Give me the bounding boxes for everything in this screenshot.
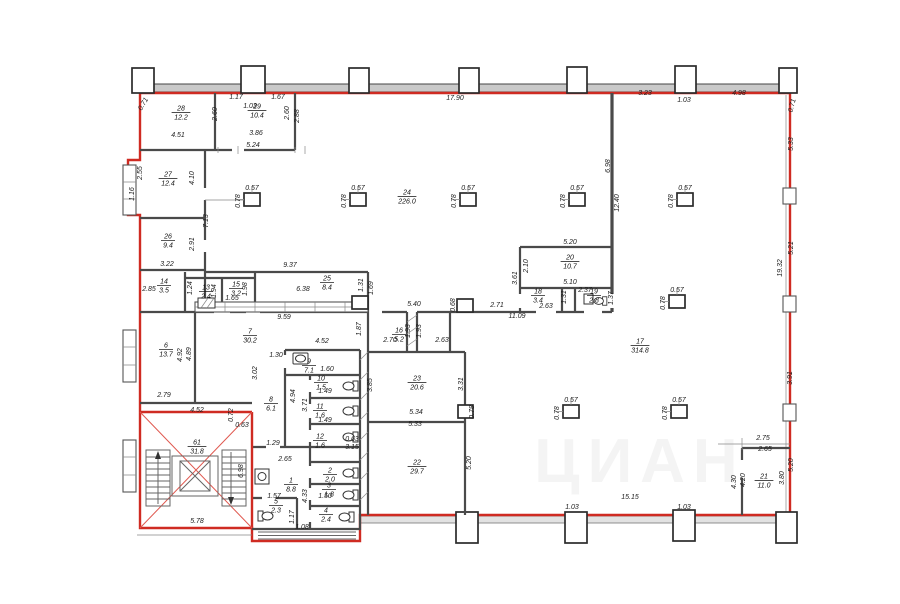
room-number: 20 [565, 255, 574, 262]
room-label-16: 165.2 [392, 328, 406, 344]
room-number: 8 [269, 397, 273, 404]
dim-label: 1.29 [266, 440, 280, 447]
dim-label: 17.90 [446, 95, 464, 102]
dim-label: 4.52 [315, 338, 329, 345]
dim-label: 1.67 [271, 94, 286, 101]
room-area: 2.8 [588, 298, 599, 305]
dim-label: 4.89 [186, 347, 193, 361]
dim-label: 0.78 [668, 194, 675, 208]
dim-label: 4.94 [290, 389, 297, 403]
floor-plan-canvas: ЦИАН [0, 0, 900, 604]
dim-label: 1.17 [229, 94, 244, 101]
dim-label: 1.93 [405, 324, 412, 338]
dim-label: 4.98 [732, 90, 746, 97]
room-number: 17 [636, 339, 645, 346]
dim-label: 2.88 [294, 109, 301, 124]
room-area: 2.3 [270, 508, 281, 515]
room-label-8: 86.1 [264, 397, 278, 413]
room-number: 26 [163, 234, 172, 241]
room-area: 12.2 [174, 115, 188, 122]
room-label-26: 269.4 [161, 234, 175, 250]
room-area: 2.4 [200, 294, 211, 301]
dim-label: 5.34 [409, 409, 423, 416]
room-number: 23 [412, 376, 421, 383]
room-number: 61 [193, 440, 201, 447]
room-area: 2.4 [320, 517, 331, 524]
room-label-17: 17314.8 [631, 339, 650, 355]
room-number: 10 [317, 376, 325, 383]
dim-label: 0.68 [450, 298, 457, 312]
room-area: 1.6 [315, 443, 325, 450]
dim-label: 2.65 [757, 446, 772, 453]
dim-label: 0.57 [351, 185, 366, 192]
room-area: 5.2 [394, 337, 404, 344]
dim-label: 5.24 [246, 142, 260, 149]
dim-label: 4.51 [171, 132, 185, 139]
room-label-28: 2812.2 [172, 106, 191, 122]
dim-label: 0.57 [678, 185, 693, 192]
dim-label: 3.02 [252, 366, 259, 380]
dim-label: 5.20 [563, 239, 577, 246]
stair-up-arrow [155, 451, 161, 504]
room-area: 13.7 [159, 352, 174, 359]
room-number: 7 [248, 329, 253, 336]
dim-label: 1.60 [320, 366, 334, 373]
dim-label: 3.22 [160, 261, 174, 268]
room-area: 8.4 [322, 285, 332, 292]
room-number: 28 [176, 106, 185, 113]
dim-label: 2.85 [141, 286, 156, 293]
dim-label: 3.31 [458, 377, 465, 391]
dim-label: 2.60 [284, 106, 291, 121]
room-number: 18 [534, 289, 542, 296]
sink-icon [293, 353, 308, 364]
dim-label: 1.93 [416, 324, 423, 338]
dim-label: 0.57 [461, 185, 476, 192]
room-number: 13 [202, 285, 210, 292]
room-label-27: 2712.4 [159, 172, 178, 188]
room-area: 31.8 [190, 449, 204, 456]
dim-label: 1.24 [187, 281, 194, 295]
room-area: 1.6 [315, 413, 325, 420]
room-area: 10.4 [250, 113, 264, 120]
dim-label: 1.98 [242, 282, 249, 296]
room-number: 14 [160, 279, 168, 286]
dim-label: 1.87 [356, 321, 363, 336]
dim-label: 1.03 [565, 504, 579, 511]
dim-label: 0.78 [469, 405, 476, 419]
toilet-icon [343, 406, 358, 416]
toilet-icon [343, 468, 358, 478]
dim-label: 5.20 [466, 456, 473, 470]
dim-label: 0.78 [660, 296, 667, 310]
entrance-steps [258, 532, 356, 539]
dim-label: 3.61 [512, 271, 519, 285]
dim-label: 1.03 [677, 504, 691, 511]
dim-label: 1.69 [368, 281, 375, 295]
dim-label: 1.08 [295, 524, 309, 531]
room-number: 4 [324, 508, 328, 515]
dim-label: 0.78 [341, 194, 348, 208]
dim-label: 19.32 [777, 259, 784, 277]
dim-label: 4.20 [740, 473, 747, 487]
dim-label: 5.33 [408, 421, 422, 428]
dim-label: 5.21 [788, 241, 795, 255]
dim-label: 7.13 [203, 214, 210, 228]
room-area: 10.7 [563, 264, 578, 271]
room-label-21: 2111.0 [755, 474, 774, 490]
room-number: 12 [316, 434, 324, 441]
room-number: 27 [163, 172, 173, 179]
room-label-25: 258.4 [320, 276, 334, 292]
dim-label: 0.63 [345, 436, 359, 443]
stair-down-arrow [228, 452, 234, 505]
dim-label: 2.79 [156, 392, 171, 399]
dim-label: 12.40 [614, 194, 621, 212]
room-number: 16 [395, 328, 403, 335]
room-area: 20.6 [409, 385, 424, 392]
room-label-23: 2320.6 [408, 376, 427, 392]
dim-label: 9.37 [283, 262, 298, 269]
room-number: 21 [759, 474, 768, 481]
dim-label: 0.63 [235, 422, 249, 429]
toilet-icon [343, 490, 358, 500]
dim-label: 4.10 [189, 171, 196, 185]
room-area: 3.5 [159, 288, 169, 295]
room-label-61: 6131.8 [188, 440, 207, 456]
dim-label: 2.10 [523, 259, 530, 274]
room-number: 19 [590, 289, 598, 296]
dim-label: 0.57 [245, 185, 260, 192]
dim-label: 2.63 [434, 337, 449, 344]
room-label-7: 730.2 [243, 329, 257, 345]
dim-label: 1.03 [677, 97, 691, 104]
room-label-2: 22.0 [323, 468, 337, 484]
room-label-1: 18.8 [284, 478, 298, 494]
room-area: 1.5 [316, 385, 326, 392]
dim-label: 2.91 [189, 237, 196, 252]
dim-label: 4.30 [731, 475, 738, 489]
dim-label: 0.78 [451, 194, 458, 208]
dim-label: 5.40 [407, 301, 421, 308]
room-number: 29 [252, 104, 261, 111]
room-number: 2 [327, 468, 332, 475]
toilet-icon [339, 512, 354, 522]
dim-label: 1.30 [269, 352, 283, 359]
room-area: 314.8 [631, 348, 649, 355]
dim-label: 5.10 [563, 279, 577, 286]
dim-label: 4.52 [190, 407, 204, 414]
dim-label: 1.31 [561, 290, 568, 304]
washer-icon [255, 469, 269, 484]
dim-label: 0.78 [235, 194, 242, 208]
dim-label: 0.78 [560, 194, 567, 208]
dim-label: 15.15 [621, 494, 639, 501]
room-number: 1 [289, 478, 293, 485]
room-area: 12.4 [161, 181, 175, 188]
room-label-24: 24226.0 [397, 190, 416, 206]
room-area: 30.2 [243, 338, 257, 345]
dim-label: 2.65 [277, 456, 292, 463]
dim-label: 6.38 [296, 286, 310, 293]
room-number: 9 [307, 359, 311, 366]
dim-label: 0.72 [228, 408, 235, 422]
room-area: 226.0 [397, 199, 416, 206]
room-area: 3.4 [533, 298, 543, 305]
room-number: 25 [322, 276, 331, 283]
room-area: 6.1 [266, 406, 276, 413]
room-label-14: 143.5 [157, 279, 171, 295]
room-number: 15 [232, 282, 240, 289]
dim-label: 2.75 [755, 435, 770, 442]
room-area: 9.4 [163, 243, 173, 250]
room-number: 24 [402, 190, 411, 197]
dim-label: 3.85 [367, 378, 374, 392]
room-number: 3 [327, 483, 331, 490]
dim-label: 4.92 [177, 348, 184, 362]
dim-label: 1.94 [211, 284, 218, 298]
room-label-5: 52.3 [269, 499, 283, 515]
dim-label: 2.60 [212, 107, 219, 122]
watermark: ЦИАН [534, 427, 745, 496]
dim-label: 11.09 [509, 313, 526, 320]
room-label-6: 613.7 [159, 343, 174, 359]
dim-label: 5.33 [788, 137, 795, 151]
room-label-4: 42.4 [319, 508, 333, 524]
dim-label: 5.78 [190, 518, 204, 525]
room-number: 22 [412, 460, 421, 467]
room-area: 7.1 [304, 368, 314, 375]
dim-label: 0.78 [554, 406, 561, 420]
dim-label: 0.78 [662, 406, 669, 420]
dim-label: 3.23 [638, 90, 652, 97]
dim-label: 3.86 [249, 130, 263, 137]
dim-label: 3.80 [779, 471, 786, 485]
dim-label: 3.15 [345, 444, 359, 451]
room-number: 5 [274, 499, 278, 506]
dim-label: 0.57 [570, 185, 585, 192]
dim-label: 1.16 [129, 187, 136, 201]
room-area: 29.7 [409, 469, 425, 476]
dim-label: 1.17 [289, 509, 296, 524]
dim-label: 0.57 [564, 397, 579, 404]
dim-label: 3.71 [302, 398, 309, 412]
room-number: 6 [164, 343, 168, 350]
room-area: 8.8 [286, 487, 296, 494]
room-number: 11 [316, 404, 323, 411]
dim-label: 4.33 [302, 489, 309, 503]
dim-label: 2.71 [489, 302, 504, 309]
room-label-22: 2229.7 [408, 460, 427, 476]
dim-label: 0.57 [670, 287, 685, 294]
room-area: 3.2 [231, 291, 241, 298]
dim-label: 9.59 [277, 314, 291, 321]
dim-label: 5.20 [788, 458, 795, 472]
dim-label: 6.98 [238, 464, 245, 478]
room-label-20: 2010.7 [561, 255, 580, 271]
dim-label: 1.31 [358, 278, 365, 292]
room-area: 1.8 [324, 492, 334, 499]
elevator-shaft [172, 456, 218, 496]
dim-label: 0.57 [672, 397, 687, 404]
dim-label: 2.55 [137, 166, 144, 181]
dim-label: 1.37 [608, 290, 615, 305]
dim-label: 6.98 [605, 159, 612, 173]
toilet-icon [343, 381, 358, 391]
floor-plan-page: ЦИАН [0, 0, 900, 604]
dim-label: 3.91 [787, 371, 794, 385]
room-label-15: 153.2 [229, 282, 243, 298]
room-area: 11.0 [757, 483, 770, 490]
